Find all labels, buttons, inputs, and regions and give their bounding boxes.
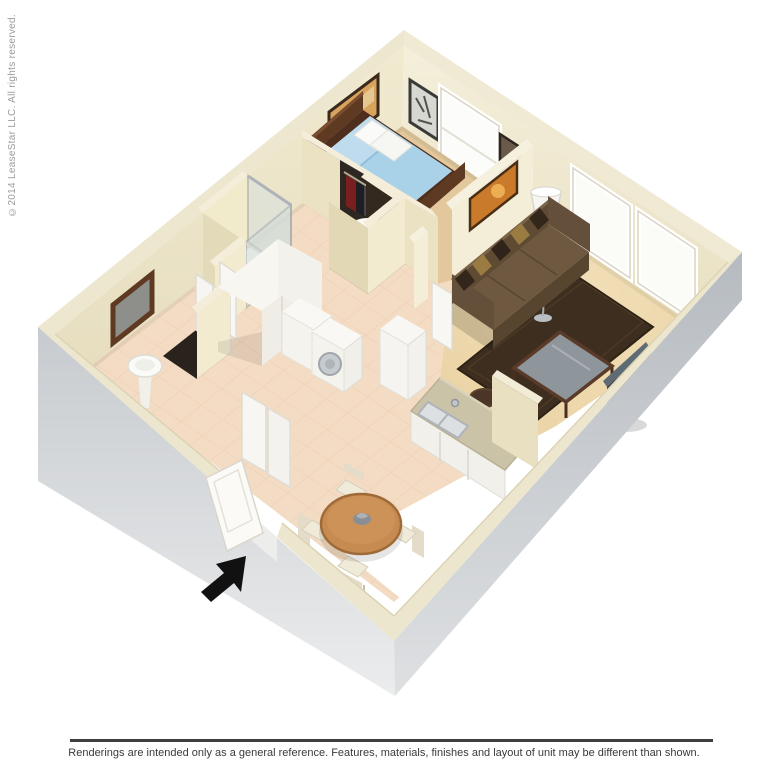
refrigerator — [380, 315, 426, 400]
floor-plan-3d — [0, 0, 768, 768]
dining-table — [319, 494, 403, 562]
footer-disclaimer: Renderings are intended only as a genera… — [0, 747, 768, 759]
bedroom-door — [432, 282, 452, 350]
footer-divider — [70, 739, 713, 742]
centerpiece — [353, 513, 371, 525]
floor-plan-svg — [0, 0, 768, 768]
